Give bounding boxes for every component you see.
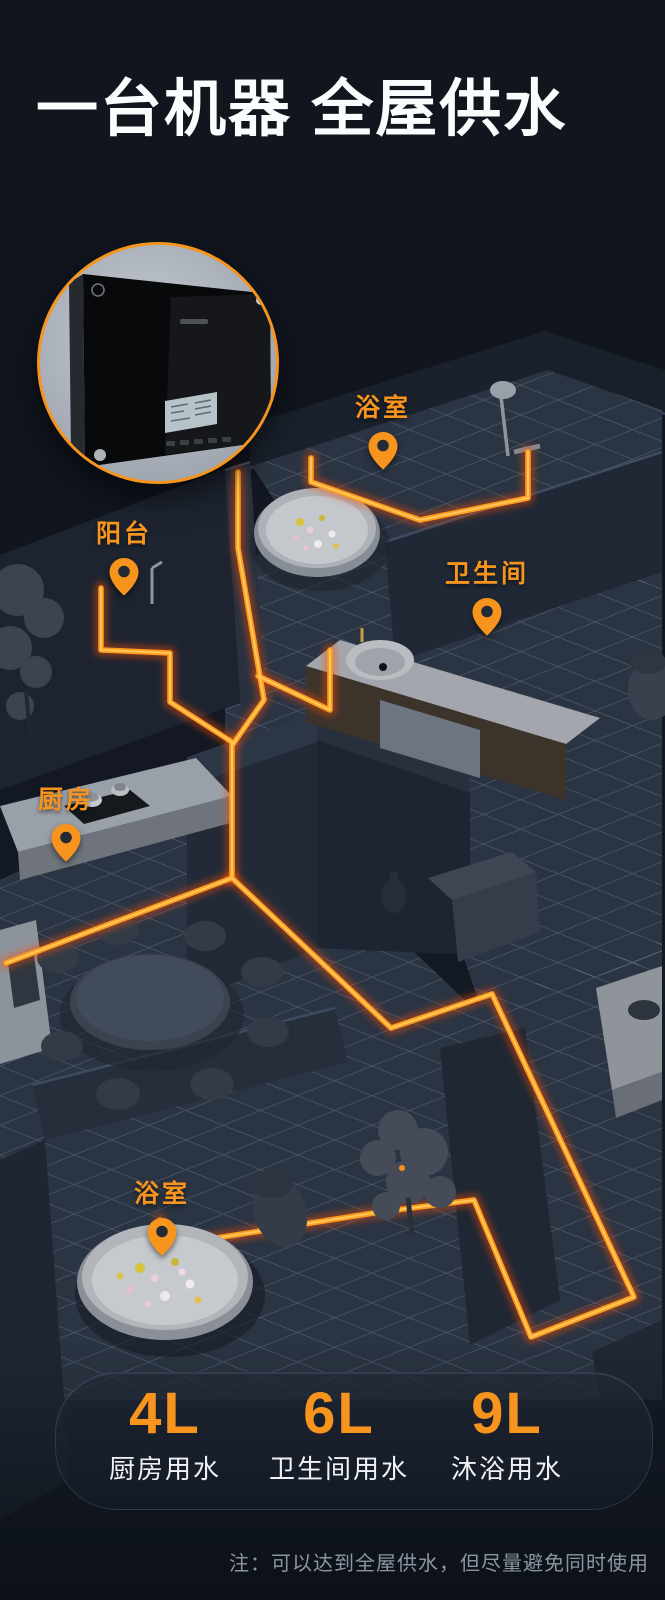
marker-label: 卫生间: [427, 554, 547, 590]
promo-page: 一台机器 全屋供水 浴室: [0, 0, 665, 1600]
map-pin-icon: [108, 557, 140, 597]
marker-kitchen: 厨房: [6, 780, 126, 863]
stat-label: 沐浴用水: [397, 1449, 617, 1486]
footnote: 注：可以达到全屋供水，但尽量避免同时使用: [229, 1547, 649, 1576]
map-pin-icon: [50, 823, 82, 863]
product-inset: [37, 242, 279, 484]
marker-balcony: 阳台: [64, 514, 184, 597]
page-title: 一台机器 全屋供水: [36, 58, 567, 148]
marker-bathroom-top: 浴室: [323, 388, 443, 471]
stat-shower: 9L 沐浴用水: [397, 1373, 617, 1486]
marker-label: 浴室: [102, 1174, 222, 1210]
map-pin-icon: [146, 1217, 178, 1257]
water-heater-image: [40, 245, 276, 481]
marker-label: 浴室: [323, 388, 443, 424]
map-pin-icon: [471, 597, 503, 637]
stats-panel: 4L 厨房用水 6L 卫生间用水 9L 沐浴用水: [55, 1372, 653, 1510]
map-pin-icon: [367, 431, 399, 471]
marker-bathroom-bottom: 浴室: [102, 1174, 222, 1257]
marker-label: 阳台: [64, 514, 184, 550]
marker-label: 厨房: [6, 780, 126, 816]
stat-value: 9L: [397, 1381, 617, 1447]
marker-toilet-room: 卫生间: [427, 554, 547, 637]
